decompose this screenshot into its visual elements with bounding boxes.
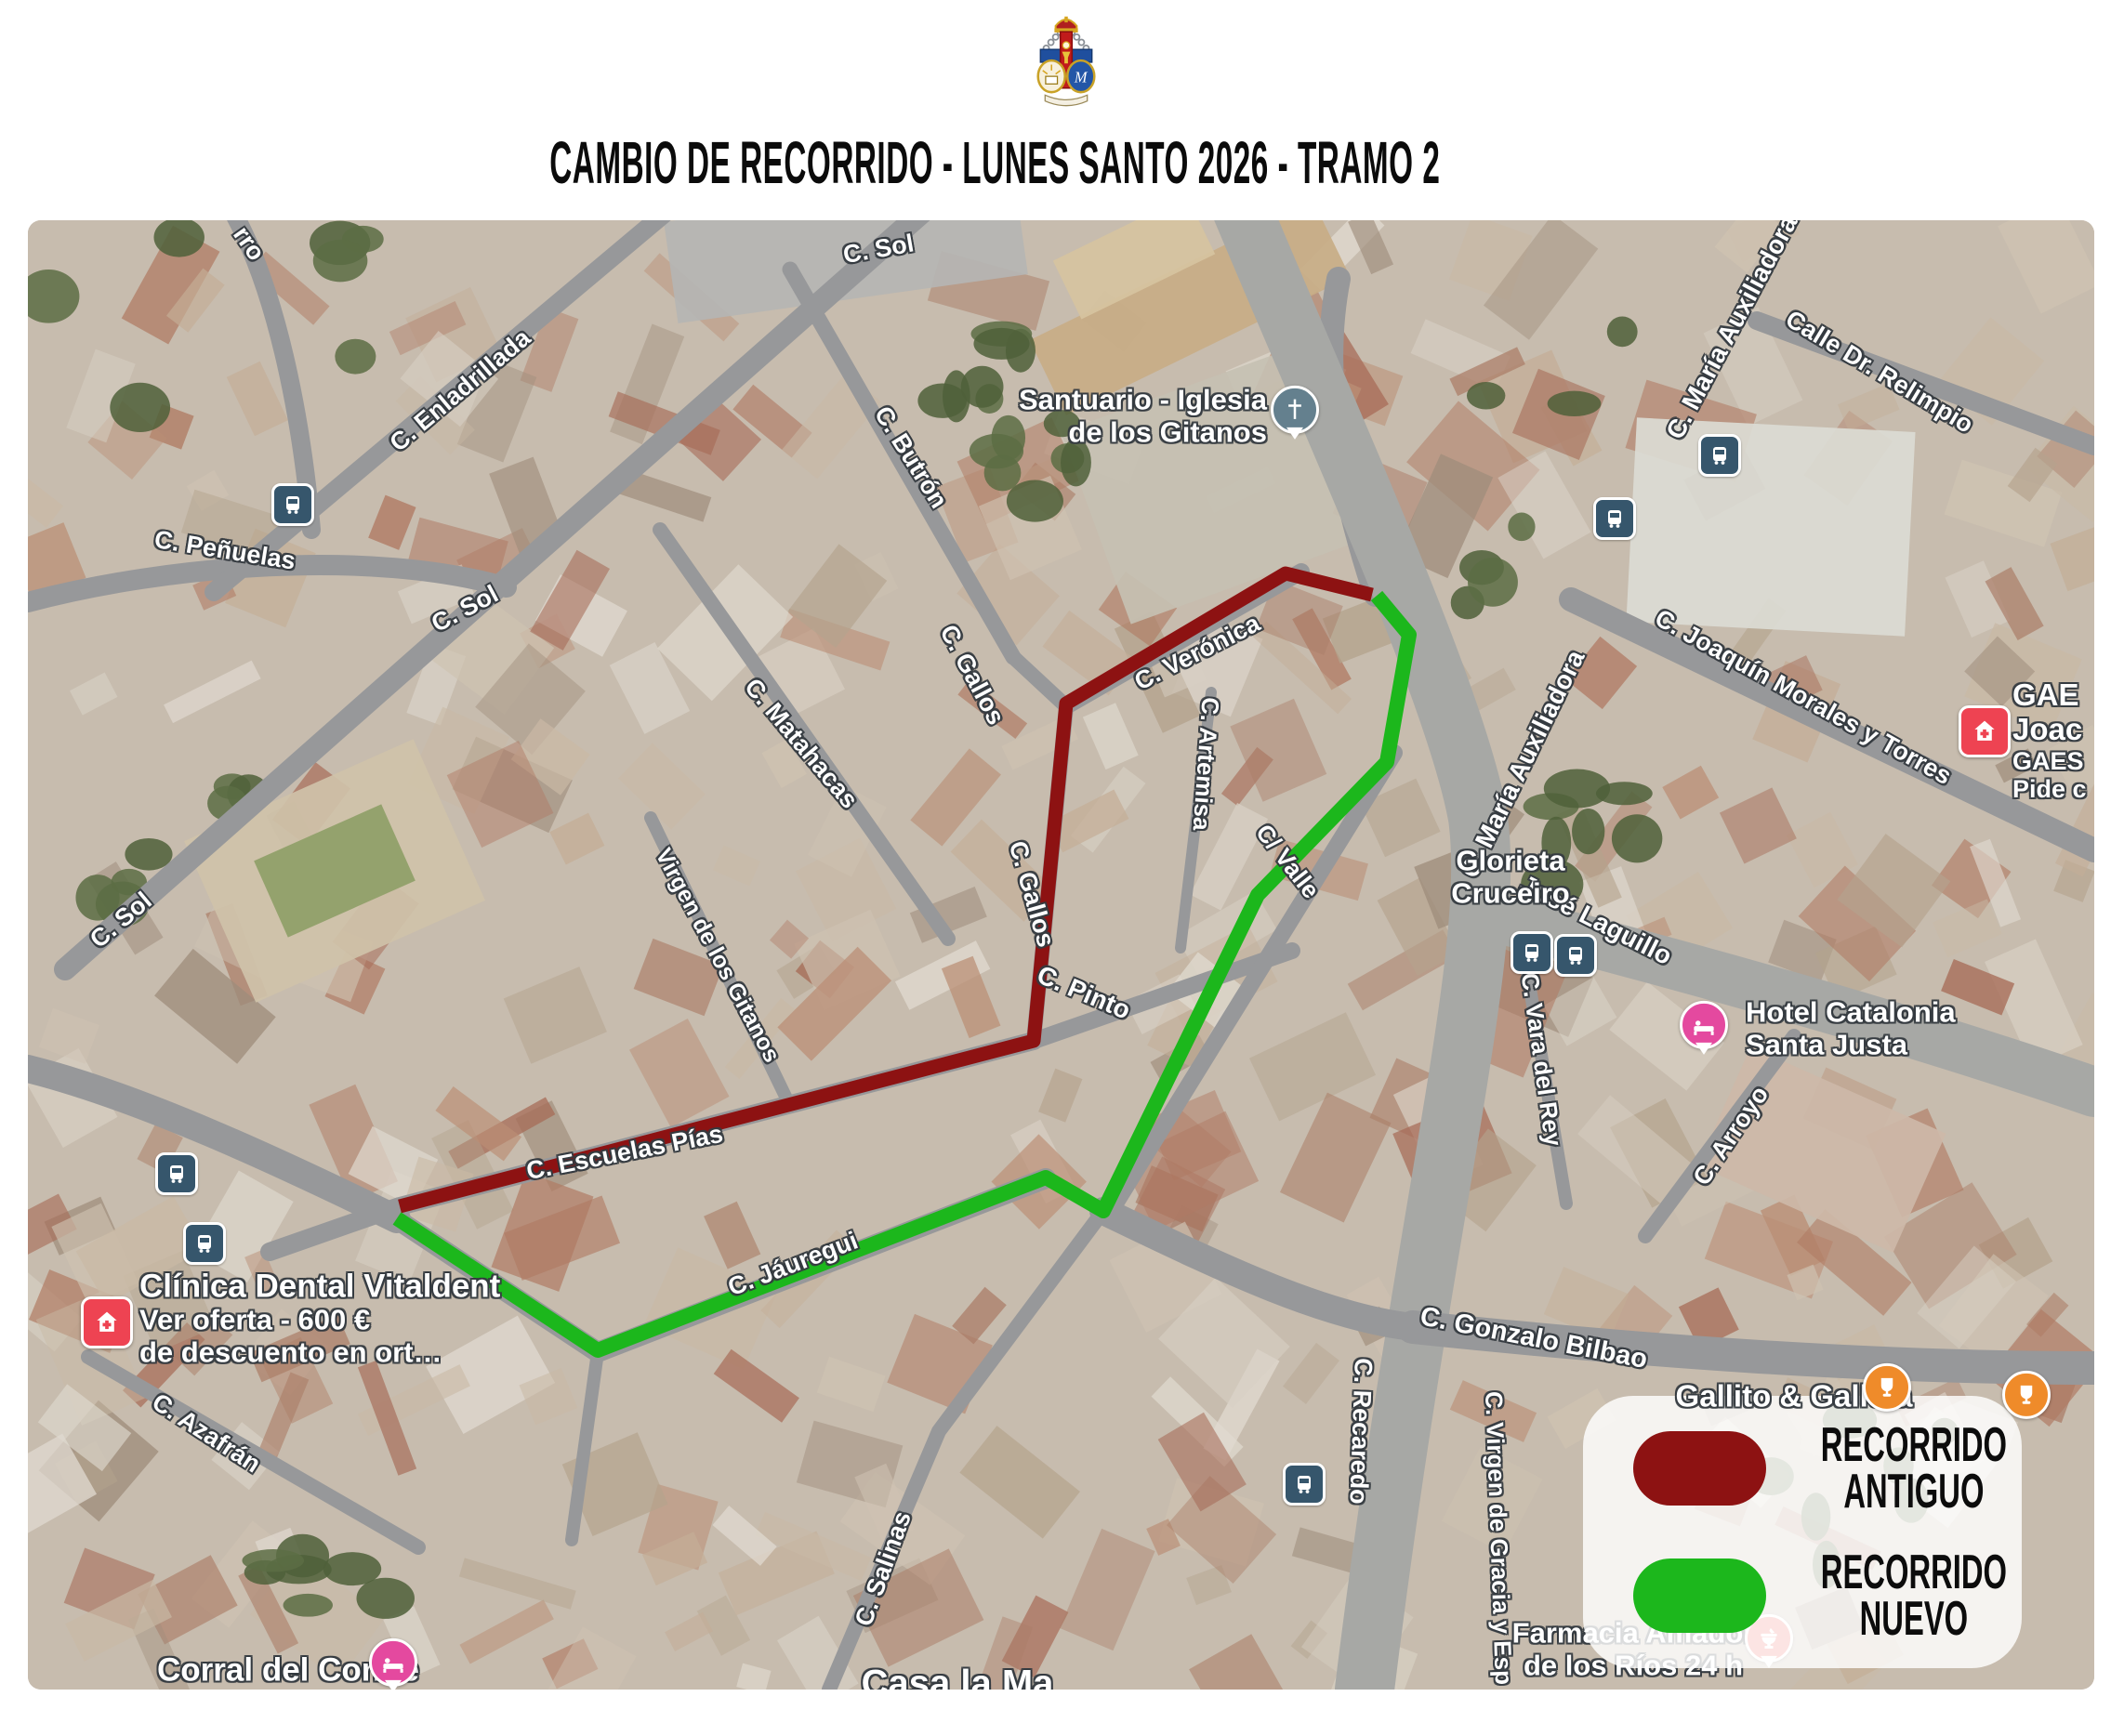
new-route-swatch: [1633, 1558, 1766, 1633]
poi-label-gaes: GAEJoacGAESPide c: [2012, 678, 2087, 803]
bus-stop-icon: [1593, 497, 1636, 540]
poi-label-santuario: Santuario - Iglesiade los Gitanos: [1019, 384, 1267, 448]
poi-label-glorieta: GlorietaCruceiro: [1451, 845, 1569, 909]
page-title: CAMBIO DE RECORRIDO - LUNES SANTO 2026 -…: [0, 128, 2124, 197]
health-pin-icon: [1959, 705, 2011, 757]
street-label: Casa la Ma: [862, 1664, 1054, 1690]
hotel-pin-icon: [369, 1638, 417, 1687]
old-route-label: RECORRIDO ANTIGUO: [1821, 1422, 2007, 1515]
poi-label-hotel-catalonia: Hotel CataloniaSanta Justa: [1746, 996, 1956, 1060]
new-route-label: RECORRIDO NUEVO: [1821, 1549, 2007, 1642]
route-legend: RECORRIDO ANTIGUO RECORRIDO NUEVO: [1583, 1396, 2022, 1668]
bus-stop-icon: [1698, 434, 1741, 477]
svg-text:M: M: [1074, 68, 1088, 85]
bus-stop-icon: [271, 483, 314, 526]
legend-item-new-route: RECORRIDO NUEVO: [1583, 1540, 2022, 1651]
street-label: C. Recaredo: [1344, 1358, 1378, 1506]
page-title-text: CAMBIO DE RECORRIDO - LUNES SANTO 2026 -…: [549, 128, 1440, 197]
satellite-map: rroC. EnladrilladaC. PeñuelasC. SolC. So…: [28, 220, 2094, 1690]
bus-stop-icon: [155, 1152, 198, 1195]
restaurant-pin-icon: [2002, 1371, 2051, 1419]
brotherhood-crest-icon: M: [1028, 13, 1104, 116]
bus-stop-icon: [1511, 931, 1553, 974]
legend-item-old-route: RECORRIDO ANTIGUO: [1583, 1413, 2022, 1524]
bus-stop-icon: [183, 1222, 226, 1265]
health-pin-icon: [81, 1296, 133, 1348]
restaurant-pin-icon: [1863, 1363, 1911, 1412]
old-route-swatch: [1633, 1431, 1766, 1506]
church-pin-icon: [1271, 386, 1319, 434]
hotel-pin-icon: [1680, 1001, 1728, 1049]
bus-stop-icon: [1283, 1463, 1326, 1506]
poi-label-clinica-vitaldent: Clínica Dental VitaldentVer oferta - 600…: [139, 1269, 500, 1370]
bus-stop-icon: [1554, 934, 1597, 977]
building-block: [1626, 417, 1915, 636]
